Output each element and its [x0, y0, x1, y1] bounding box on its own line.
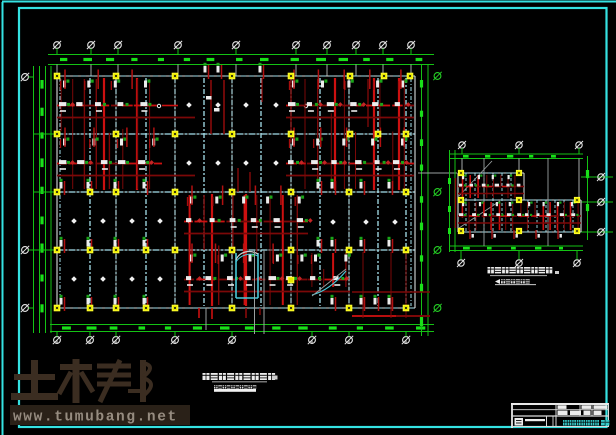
- svg-text:www.tumubang.net: www.tumubang.net: [13, 410, 178, 426]
